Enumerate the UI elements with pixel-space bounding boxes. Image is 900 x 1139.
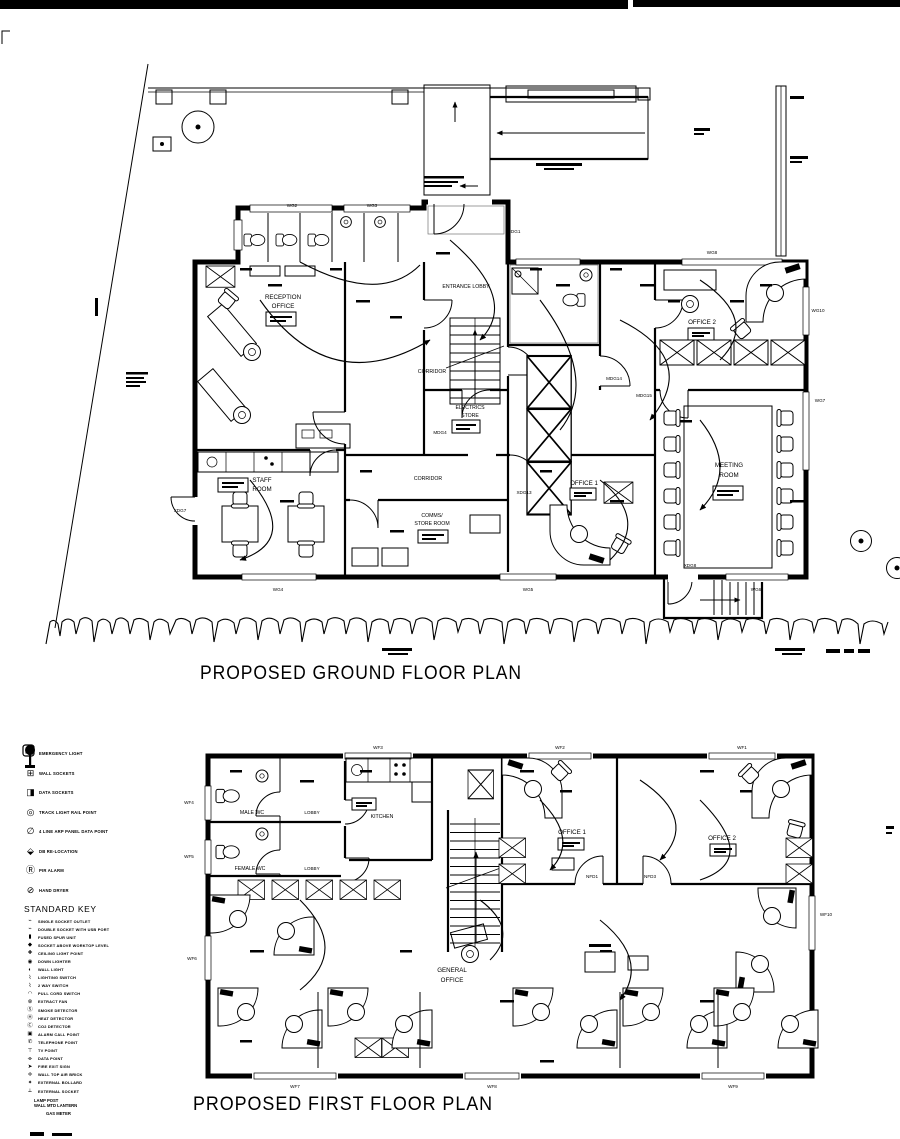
legend-symbol-icon: ⊘ xyxy=(22,886,39,895)
first-floor-plan: MALE WC LOBBY FEMALE WC LOBBY KITCHEN OF… xyxy=(184,745,894,1089)
window-code-wf8: WF8 xyxy=(487,1084,497,1089)
legend-item-label: EXTERNAL BOLLARD xyxy=(38,1080,82,1085)
legend-item: ⌯ DATA POINT xyxy=(22,1055,180,1063)
legend-item-label: WALL SOCKETS xyxy=(39,771,75,776)
legend-symbol-icon: ▣ xyxy=(22,1031,38,1037)
legend-item-label: SMOKE DETECTOR xyxy=(38,1008,77,1013)
gas-meter-icon xyxy=(22,744,35,757)
legend-symbol-icon: ✦ xyxy=(22,1080,38,1086)
legend-upper-list: ✸ EMERGENCY LIGHT ⊞ WALL SOCKETS ◨ DATA … xyxy=(22,744,180,900)
room-label-meeting-2: ROOM xyxy=(719,472,738,479)
legend-symbol-icon: Ⓗ xyxy=(22,1015,38,1021)
legend-symbol-icon: ➤ xyxy=(22,1064,38,1070)
legend-item: ⊞ WALL SOCKETS xyxy=(22,764,180,784)
legend-symbol-icon: ⊞ xyxy=(22,769,39,778)
legend-gas-meter: GAS METER xyxy=(42,1111,180,1116)
legend-symbol-icon: ⌁ xyxy=(22,926,38,932)
door-code-xdg8: XDG8 xyxy=(684,563,697,568)
hedge-line xyxy=(46,618,888,655)
legend-item-label: DOUBLE SOCKET WITH USB PORT xyxy=(38,927,109,932)
legend-symbol-icon: ⊗ xyxy=(22,999,38,1005)
legend-item-label: HAND DRYER xyxy=(39,888,69,893)
standard-key-heading: STANDARD KEY xyxy=(24,904,180,914)
door-code-nfd3: NFD3 xyxy=(644,874,656,879)
room-label-corridor-upper: CORRIDOR xyxy=(418,369,446,375)
legend-item-label: FUSED SPUR UNIT xyxy=(38,935,76,940)
legend-item-label: LIGHTING SWITCH xyxy=(38,975,76,980)
window-code-wg5: WG5 xyxy=(523,587,534,592)
door-code-nfd1: NFD1 xyxy=(586,874,598,879)
door-code-xdg7: XDG7 xyxy=(174,508,187,513)
window-code-wf5: WF5 xyxy=(184,854,194,859)
window-code-wf4: WF4 xyxy=(184,800,194,805)
legend-symbol-icon: ✛ xyxy=(22,1072,38,1078)
legend-symbol-icon: ⌯ xyxy=(22,1056,38,1062)
legend-item: ◉ DOWN LIGHTER xyxy=(22,957,180,965)
first-floor-title: PROPOSED FIRST FLOOR PLAN xyxy=(193,1094,493,1115)
legend-item: Ⓒ CO2 DETECTOR xyxy=(22,1022,180,1030)
legend-symbol-icon: ⌇ xyxy=(22,975,38,981)
legend-symbol-icon: ✚ xyxy=(22,950,38,956)
architectural-drawing-page: { "titles": { "ground": "PROPOSED GROUND… xyxy=(0,0,900,1139)
room-label-comms-2: STORE ROOM xyxy=(414,521,449,527)
first-floor-stairs xyxy=(446,818,506,950)
legend-symbol-icon: ◠ xyxy=(22,991,38,997)
window-code-wg4: WG4 xyxy=(273,587,284,592)
legend-item: ▮ FUSED SPUR UNIT xyxy=(22,933,180,941)
legend-item: ⌁ DOUBLE SOCKET WITH USB PORT xyxy=(22,925,180,933)
door-code-mdg15: MDG15 xyxy=(636,393,652,398)
site-features xyxy=(2,31,808,628)
door-code-xdg13: XDG13 xyxy=(516,490,532,495)
room-label-corridor-lower: CORRIDOR xyxy=(414,476,442,482)
bottom-cut-marks xyxy=(30,1132,72,1136)
ground-floor-plan: RECEPTION OFFICE ENTRANCE LOBBY CORRIDOR… xyxy=(171,197,826,618)
legend-item-label: 2 WAY SWITCH xyxy=(38,983,69,988)
door-code-ndg1: NDG1 xyxy=(508,229,521,234)
legend-symbol-icon: ⟂ xyxy=(22,1088,38,1094)
legend-item-label: EMERGENCY LIGHT xyxy=(39,751,83,756)
legend-item: ◨ DATA SOCKETS xyxy=(22,783,180,803)
legend-symbol-icon: Ⓒ xyxy=(22,1023,38,1029)
legend-item-label: EXTRACT FAN xyxy=(38,999,67,1004)
legend-item: ✆ TELEPHONE POINT xyxy=(22,1038,180,1046)
room-label-office2-f: OFFICE 2 xyxy=(708,835,736,842)
room-label-office1-g: OFFICE 1 xyxy=(570,480,598,487)
room-label-kitchen: KITCHEN xyxy=(371,814,394,820)
room-label-electrics: ELECTRICS xyxy=(455,405,485,411)
lantern-label: WALL MTD LANTERN xyxy=(34,1103,77,1108)
room-label-staff: STAFF xyxy=(252,477,271,484)
room-label-meeting: MEETING xyxy=(715,462,743,469)
legend-item: Ⓢ SMOKE DETECTOR xyxy=(22,1006,180,1014)
window-code-wf1: WF1 xyxy=(737,745,747,750)
legend-item-label: WALL LIGHT xyxy=(38,967,64,972)
legend-item: Ⓗ HEAT DETECTOR xyxy=(22,1014,180,1022)
legend-item-label: HEAT DETECTOR xyxy=(38,1016,73,1021)
room-label-male-wc: MALE WC xyxy=(240,810,264,816)
legend-item: ◐ WALL LIGHT xyxy=(22,966,180,974)
legend-item-label: 4 LINE ARP PANEL DATA POINT xyxy=(39,829,108,834)
legend-item: ◎ TRACK LIGHT RAIL POINT xyxy=(22,803,180,823)
legend-item-label: TRACK LIGHT RAIL POINT xyxy=(39,810,97,815)
legend-item-label: SOCKET ABOVE WORKTOP LEVEL xyxy=(38,943,109,948)
legend-item: ⊘ HAND DRYER xyxy=(22,881,180,901)
legend-item: ✸ EMERGENCY LIGHT xyxy=(22,744,180,764)
legend-item-label: EXTERNAL SOCKET xyxy=(38,1089,79,1094)
legend-item: Ⓡ PIR ALARM xyxy=(22,861,180,881)
window-code-wf3: WF3 xyxy=(373,745,383,750)
legend-item-label: DB RE-LOCATION xyxy=(39,849,78,854)
legend-item: ✦ EXTERNAL BOLLARD xyxy=(22,1079,180,1087)
legend-symbol-icon: ⊤ xyxy=(22,1048,38,1054)
window-code-wf7: WF7 xyxy=(290,1084,300,1089)
legend-item-label: TELEPHONE POINT xyxy=(38,1040,78,1045)
window-code-wg6: WG6 xyxy=(751,587,762,592)
room-label-lobby-m: LOBBY xyxy=(304,810,319,815)
legend-item-label: CO2 DETECTOR xyxy=(38,1024,71,1029)
legend-item: ⊤ TV POINT xyxy=(22,1047,180,1055)
legend-item: ⌇ LIGHTING SWITCH xyxy=(22,974,180,982)
legend-item: ✛ WALL TOP AIR BRICK xyxy=(22,1071,180,1079)
legend-item: ⟂ EXTERNAL SOCKET xyxy=(22,1087,180,1095)
legend-lamp-post: LAMP POST WALL MTD LANTERN xyxy=(34,1098,180,1108)
legend-item-label: PIR ALARM xyxy=(39,868,64,873)
legend-symbol-icon: ⌁ xyxy=(22,918,38,924)
legend-symbol-icon: ▮ xyxy=(22,934,38,940)
legend-symbol-icon: ⌇ xyxy=(22,983,38,989)
window-code-wg3: WG3 xyxy=(367,203,378,208)
legend-item-label: ALARM CALL POINT xyxy=(38,1032,80,1037)
legend-symbol-icon: ◉ xyxy=(22,959,38,965)
legend-item-label: DATA SOCKETS xyxy=(39,790,74,795)
room-label-office1-f: OFFICE 1 xyxy=(558,829,586,836)
legend-symbol-icon: ◆ xyxy=(22,942,38,948)
room-label-lobby-f: LOBBY xyxy=(304,866,319,871)
room-label-entrance-lobby: ENTRANCE LOBBY xyxy=(442,284,490,290)
room-label-female-wc: FEMALE WC xyxy=(235,866,266,872)
room-label-general: GENERAL xyxy=(437,967,467,974)
legend-symbol-icon: ◎ xyxy=(22,808,39,817)
ground-floor-title: PROPOSED GROUND FLOOR PLAN xyxy=(200,663,522,684)
legend-item-label: WALL TOP AIR BRICK xyxy=(38,1072,83,1077)
legend-symbol-icon: ✆ xyxy=(22,1039,38,1045)
legend-main-list: ⌁ SINGLE SOCKET OUTLET ⌁ DOUBLE SOCKET W… xyxy=(22,917,180,1095)
window-code-wg8: WG8 xyxy=(707,250,718,255)
legend-item-label: DATA POINT xyxy=(38,1056,63,1061)
legend-symbol-icon: ⬙ xyxy=(22,847,39,856)
gas-meter-label: GAS METER xyxy=(46,1111,71,1116)
window-code-wf2: WF2 xyxy=(555,745,565,750)
legend-item-label: DOWN LIGHTER xyxy=(38,959,71,964)
legend-item-label: CEILING LIGHT POINT xyxy=(38,951,83,956)
window-code-wf6: WF6 xyxy=(187,956,197,961)
window-code-wg2: WG2 xyxy=(287,203,298,208)
legend-item: ▣ ALARM CALL POINT xyxy=(22,1030,180,1038)
room-label-office2-g: OFFICE 2 xyxy=(688,319,716,326)
window-code-wg10: WG10 xyxy=(811,308,824,313)
legend-item: ◠ PULL CORD SWITCH xyxy=(22,990,180,998)
room-label-staff-2: ROOM xyxy=(252,486,271,493)
door-code-mdg4: MDG4 xyxy=(433,430,447,435)
legend-item: ⊗ EXTRACT FAN xyxy=(22,998,180,1006)
window-code-wf9: WF9 xyxy=(728,1084,738,1089)
legend-item: ⌁ SINGLE SOCKET OUTLET xyxy=(22,917,180,925)
legend-symbol-icon: Ⓡ xyxy=(22,866,39,875)
legend-symbol-icon: ◨ xyxy=(22,788,39,797)
legend-item: ✚ CEILING LIGHT POINT xyxy=(22,949,180,957)
legend-item-label: TV POINT xyxy=(38,1048,58,1053)
room-label-reception: RECEPTION xyxy=(265,294,301,301)
legend-item-label: SINGLE SOCKET OUTLET xyxy=(38,919,90,924)
legend-item: ➤ FIRE EXIT SIGN xyxy=(22,1063,180,1071)
window-code-wf10: WF10 xyxy=(820,912,833,917)
room-label-electrics-2: STORE xyxy=(461,413,479,419)
room-label-general-2: OFFICE xyxy=(441,977,464,984)
legend-item-label: PULL CORD SWITCH xyxy=(38,991,80,996)
legend-item: ⬙ DB RE-LOCATION xyxy=(22,842,180,862)
legend-item-label: FIRE EXIT SIGN xyxy=(38,1064,70,1069)
legend-item: ∅ 4 LINE ARP PANEL DATA POINT xyxy=(22,822,180,842)
legend-panel: ✸ EMERGENCY LIGHT ⊞ WALL SOCKETS ◨ DATA … xyxy=(22,744,180,1116)
window-code-wg7: WG7 xyxy=(815,398,826,403)
room-label-comms: COMMS/ xyxy=(421,513,443,519)
legend-symbol-icon: Ⓢ xyxy=(22,1007,38,1013)
legend-symbol-icon: ∅ xyxy=(22,827,39,836)
legend-item: ◆ SOCKET ABOVE WORKTOP LEVEL xyxy=(22,941,180,949)
legend-item: ⌇ 2 WAY SWITCH xyxy=(22,982,180,990)
legend-symbol-icon: ◐ xyxy=(22,967,38,973)
room-label-reception-2: OFFICE xyxy=(272,303,295,310)
door-code-mdg14: MDG14 xyxy=(606,376,622,381)
